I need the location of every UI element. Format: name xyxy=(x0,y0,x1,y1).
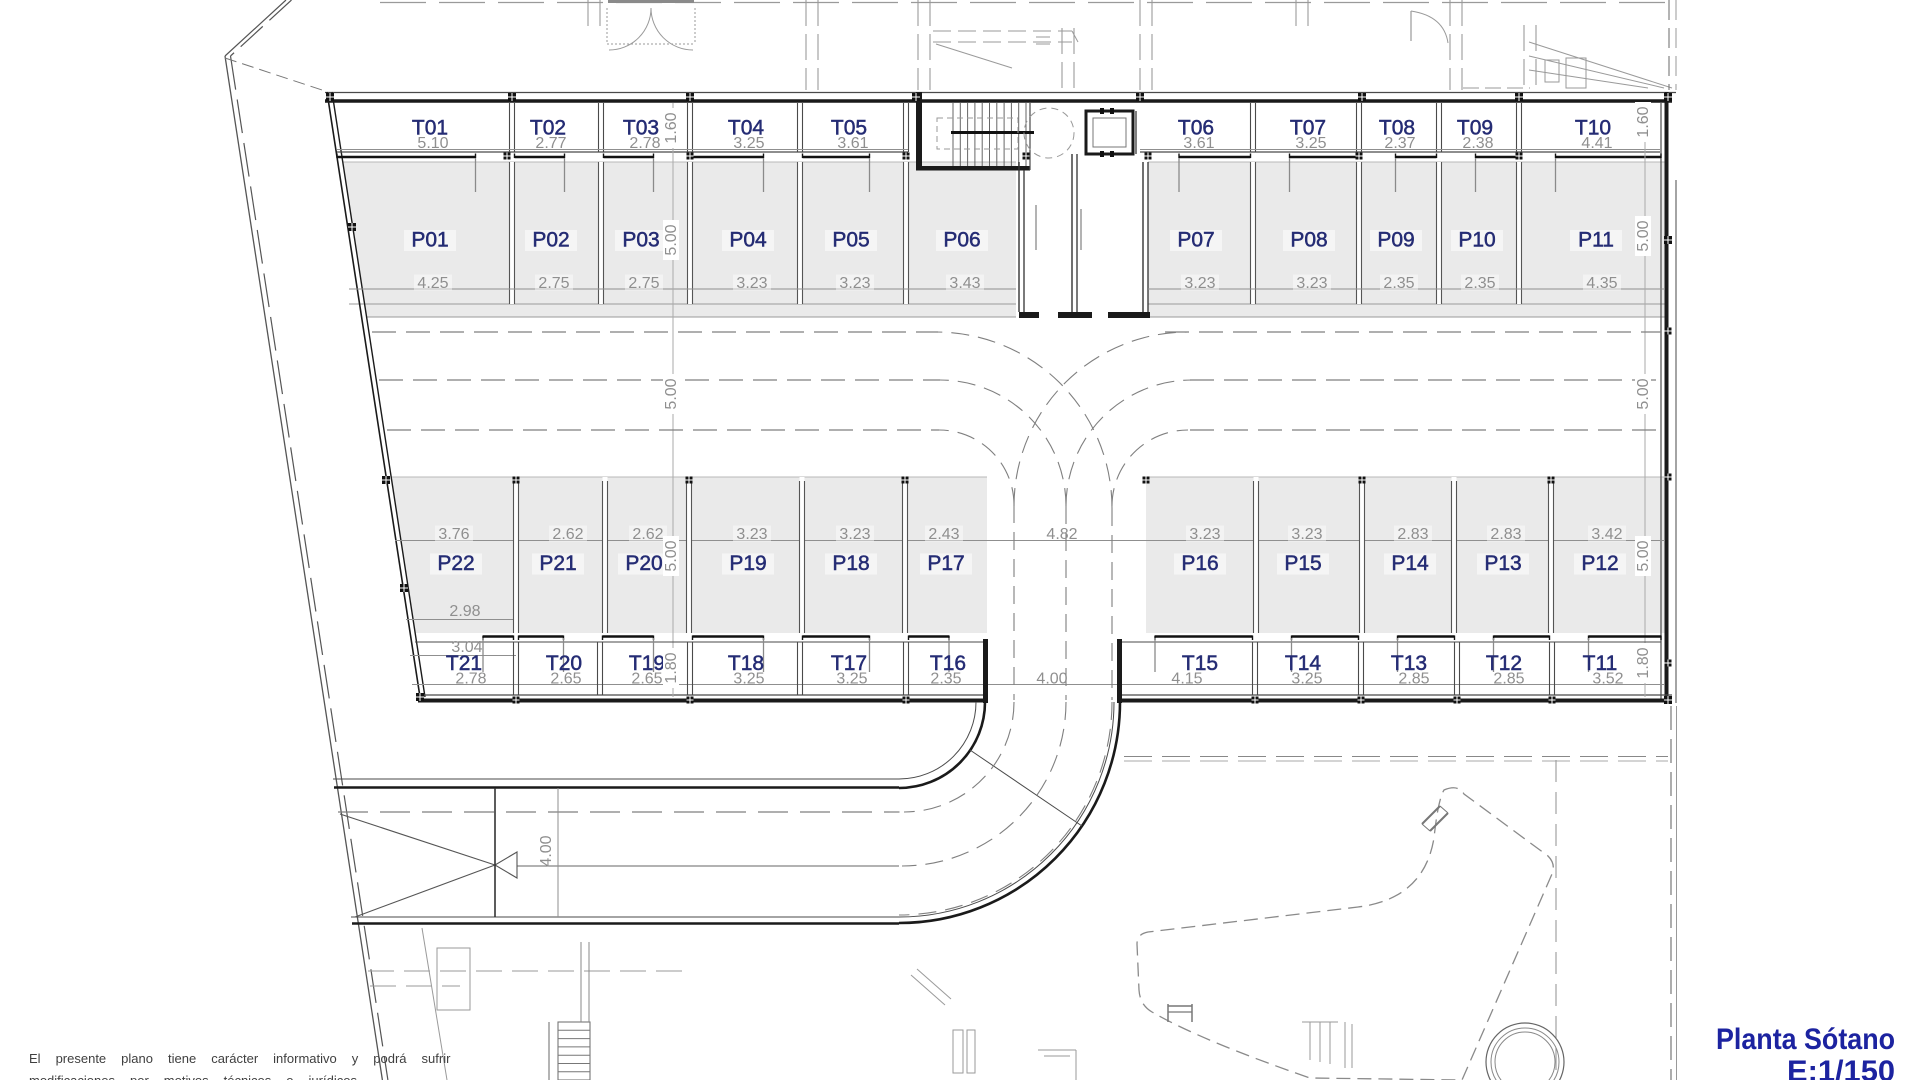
svg-text:2.77: 2.77 xyxy=(535,135,566,152)
svg-text:P02: P02 xyxy=(532,229,569,252)
svg-text:modificaciones por motivos téc: modificaciones por motivos técnicos o ju… xyxy=(29,1073,357,1080)
svg-text:P08: P08 xyxy=(1290,229,1327,252)
svg-text:P15: P15 xyxy=(1284,552,1321,575)
svg-text:P05: P05 xyxy=(832,229,869,252)
svg-text:2.43: 2.43 xyxy=(928,526,959,543)
svg-text:3.23: 3.23 xyxy=(736,275,767,292)
svg-text:3.23: 3.23 xyxy=(1189,526,1220,543)
svg-text:2.65: 2.65 xyxy=(631,671,662,688)
svg-text:5.00: 5.00 xyxy=(663,378,680,409)
svg-text:2.62: 2.62 xyxy=(632,526,663,543)
svg-text:3.23: 3.23 xyxy=(736,526,767,543)
svg-text:2.65: 2.65 xyxy=(550,671,581,688)
svg-text:P04: P04 xyxy=(729,229,767,252)
svg-text:P12: P12 xyxy=(1581,552,1618,575)
svg-text:P17: P17 xyxy=(927,552,964,575)
svg-text:3.23: 3.23 xyxy=(839,526,870,543)
svg-text:P22: P22 xyxy=(437,552,474,575)
svg-text:3.23: 3.23 xyxy=(1291,526,1322,543)
svg-text:P13: P13 xyxy=(1484,552,1521,575)
svg-text:2.83: 2.83 xyxy=(1397,526,1428,543)
svg-text:3.61: 3.61 xyxy=(1183,135,1214,152)
svg-text:4.15: 4.15 xyxy=(1171,671,1202,688)
svg-text:3.23: 3.23 xyxy=(839,275,870,292)
svg-text:2.37: 2.37 xyxy=(1384,135,1415,152)
svg-text:1.80: 1.80 xyxy=(1635,647,1652,678)
svg-text:3.25: 3.25 xyxy=(836,671,867,688)
svg-text:2.35: 2.35 xyxy=(1383,275,1414,292)
svg-text:3.43: 3.43 xyxy=(949,275,980,292)
svg-text:El presente plano tiene caráct: El presente plano tiene carácter informa… xyxy=(29,1051,451,1066)
svg-text:2.75: 2.75 xyxy=(538,275,569,292)
svg-text:2.85: 2.85 xyxy=(1493,671,1524,688)
svg-text:3.25: 3.25 xyxy=(733,135,764,152)
svg-text:5.10: 5.10 xyxy=(417,135,448,152)
svg-text:3.42: 3.42 xyxy=(1591,526,1622,543)
svg-text:P09: P09 xyxy=(1377,229,1414,252)
svg-text:4.25: 4.25 xyxy=(417,275,448,292)
svg-text:5.00: 5.00 xyxy=(1635,540,1652,571)
svg-text:2.78: 2.78 xyxy=(629,135,660,152)
svg-text:3.25: 3.25 xyxy=(1291,671,1322,688)
svg-text:2.85: 2.85 xyxy=(1398,671,1429,688)
svg-text:1.60: 1.60 xyxy=(663,112,680,143)
svg-text:P19: P19 xyxy=(729,552,766,575)
svg-text:2.75: 2.75 xyxy=(628,275,659,292)
svg-text:P20: P20 xyxy=(625,552,662,575)
svg-text:3.04: 3.04 xyxy=(451,639,482,656)
svg-text:3.52: 3.52 xyxy=(1592,671,1623,688)
svg-text:Planta Sótano: Planta Sótano xyxy=(1716,1023,1895,1056)
svg-text:P06: P06 xyxy=(943,229,980,252)
svg-text:P03: P03 xyxy=(622,229,659,252)
svg-text:2.35: 2.35 xyxy=(930,671,961,688)
svg-text:2.78: 2.78 xyxy=(455,671,486,688)
svg-text:4.35: 4.35 xyxy=(1586,275,1617,292)
svg-text:3.76: 3.76 xyxy=(438,526,469,543)
svg-text:P11: P11 xyxy=(1578,229,1614,252)
svg-text:P21: P21 xyxy=(539,552,576,575)
svg-text:5.00: 5.00 xyxy=(663,224,680,255)
svg-text:2.98: 2.98 xyxy=(449,603,480,620)
svg-text:3.23: 3.23 xyxy=(1296,275,1327,292)
svg-text:P16: P16 xyxy=(1181,552,1218,575)
svg-text:3.25: 3.25 xyxy=(1295,135,1326,152)
svg-text:2.35: 2.35 xyxy=(1464,275,1495,292)
svg-text:5.00: 5.00 xyxy=(663,540,680,571)
svg-text:3.61: 3.61 xyxy=(837,135,868,152)
svg-text:2.62: 2.62 xyxy=(552,526,583,543)
svg-text:P18: P18 xyxy=(832,552,869,575)
svg-text:4.00: 4.00 xyxy=(1036,671,1067,688)
svg-text:P01: P01 xyxy=(411,229,448,252)
svg-text:5.00: 5.00 xyxy=(1635,220,1652,251)
svg-text:4.00: 4.00 xyxy=(538,835,555,866)
svg-text:E:1/150: E:1/150 xyxy=(1787,1055,1895,1080)
svg-text:3.23: 3.23 xyxy=(1184,275,1215,292)
svg-text:4.82: 4.82 xyxy=(1046,526,1077,543)
svg-text:3.25: 3.25 xyxy=(733,671,764,688)
svg-text:1.60: 1.60 xyxy=(1635,106,1652,137)
svg-text:2.83: 2.83 xyxy=(1490,526,1521,543)
svg-text:2.38: 2.38 xyxy=(1462,135,1493,152)
svg-text:1.80: 1.80 xyxy=(663,652,680,683)
svg-text:P10: P10 xyxy=(1458,229,1495,252)
svg-text:P14: P14 xyxy=(1391,552,1429,575)
svg-text:5.00: 5.00 xyxy=(1635,378,1652,409)
svg-text:4.41: 4.41 xyxy=(1581,135,1612,152)
svg-text:P07: P07 xyxy=(1177,229,1214,252)
